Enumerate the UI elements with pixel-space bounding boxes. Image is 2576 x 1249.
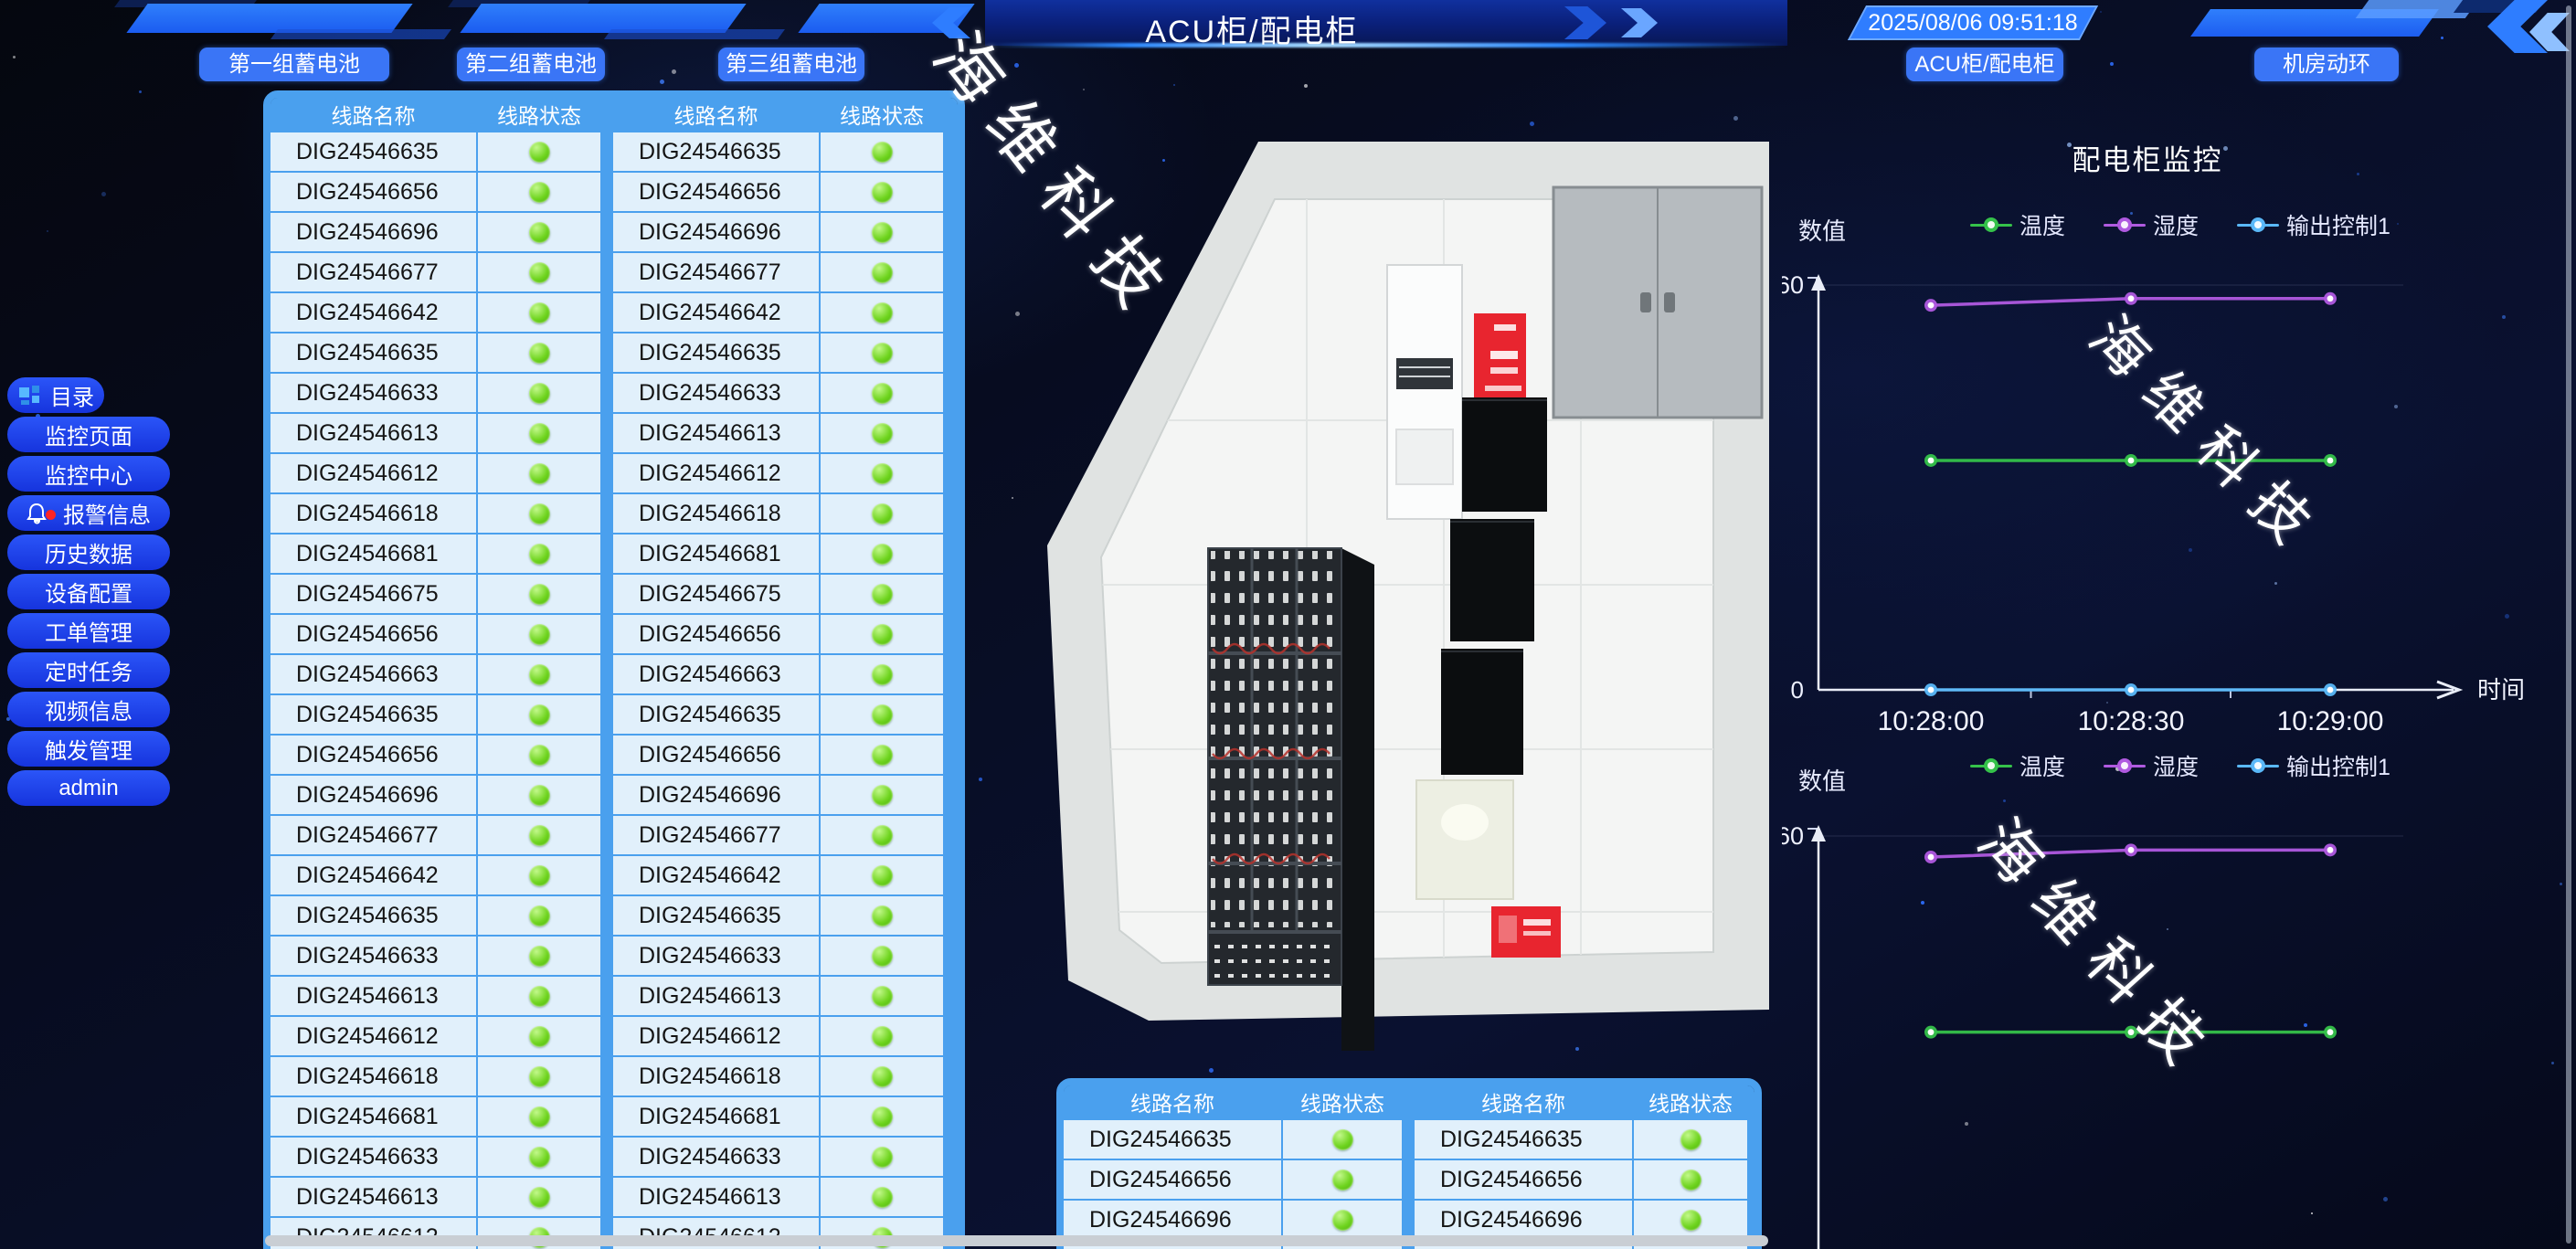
circuit-status-cell: [478, 776, 600, 814]
table-divider: [602, 695, 611, 734]
circuit-name-cell: DIG24546612: [613, 454, 819, 492]
table-header-cell: 线路状态: [1283, 1085, 1402, 1118]
status-ok-dot: [529, 825, 550, 846]
status-ok-dot: [529, 664, 550, 685]
table-divider: [602, 856, 611, 894]
status-ok-dot: [872, 1026, 893, 1047]
svg-text:10:29:00: 10:29:00: [2277, 706, 2384, 736]
circuit-status-cell: [478, 977, 600, 1015]
circuit-name-cell: DIG24546677: [613, 816, 819, 854]
circuit-status-cell: [821, 414, 943, 452]
header-deco-bar: [270, 29, 451, 39]
status-ok-dot: [872, 262, 893, 283]
acu-cabinet-button[interactable]: ACU柜/配电柜: [1906, 48, 2063, 81]
sidebar-item-menu[interactable]: 目录: [7, 377, 104, 413]
sidebar-item-label: 工单管理: [45, 615, 133, 647]
table-divider: [602, 977, 611, 1015]
circuit-name-cell: DIG24546696: [613, 776, 819, 814]
circuit-name-cell: DIG24546613: [270, 1178, 476, 1216]
circuit-name-cell: DIG24546656: [270, 615, 476, 653]
status-ok-dot: [529, 222, 550, 243]
circuit-name-cell: DIG24546613: [613, 414, 819, 452]
circuit-name-cell: DIG24546613: [613, 1178, 819, 1216]
circuit-status-cell: [821, 1017, 943, 1055]
circuit-name-cell: DIG24546635: [270, 333, 476, 372]
table-header-cell: 线路名称: [1064, 1085, 1281, 1118]
table-divider: [602, 816, 611, 854]
circuit-status-cell: [478, 1057, 600, 1096]
circuit-name-cell: DIG24546656: [1064, 1160, 1281, 1199]
svg-text:数值: 数值: [1798, 767, 1846, 795]
sidebar-item-device-config[interactable]: 设备配置: [7, 574, 170, 609]
circuit-name-cell: DIG24546612: [270, 1017, 476, 1055]
star-dot: [1209, 1068, 1214, 1073]
status-ok-dot: [529, 785, 550, 806]
circuit-name-cell: DIG24546642: [613, 293, 819, 332]
circuit-status-cell: [821, 213, 943, 251]
table-divider: [602, 454, 611, 492]
circuit-name-cell: DIG24546696: [1064, 1201, 1281, 1239]
circuit-name-cell: DIG24546618: [270, 1057, 476, 1096]
status-ok-dot: [872, 986, 893, 1007]
circuit-status-cell: [1283, 1120, 1402, 1159]
circuit-status-cell: [821, 374, 943, 412]
star-dot: [660, 79, 664, 84]
battery-group-3-button[interactable]: 第三组蓄电池: [718, 48, 864, 81]
circuit-status-cell: [821, 776, 943, 814]
circuit-status-cell: [478, 655, 600, 693]
circuit-name-cell: DIG24546677: [270, 253, 476, 291]
circuit-status-cell: [1634, 1120, 1747, 1159]
circuit-status-cell: [821, 173, 943, 211]
circuit-name-cell: DIG24546677: [613, 253, 819, 291]
circuit-name-cell: DIG24546633: [613, 937, 819, 975]
table-divider: [1404, 1160, 1413, 1199]
star-dot: [13, 56, 16, 58]
machine-room-env-button[interactable]: 机房动环: [2254, 48, 2399, 81]
star-dot: [672, 69, 676, 74]
circuit-status-cell: [478, 736, 600, 774]
table-divider: [602, 374, 611, 412]
status-ok-dot: [529, 704, 550, 725]
status-ok-dot: [529, 946, 550, 967]
circuit-status-cell: [478, 1097, 600, 1136]
circuit-name-cell: DIG24546633: [270, 1138, 476, 1176]
star-dot: [101, 192, 106, 196]
dashboard-root: ACU柜/配电柜 2025/08/06 09:51:18 第一组蓄电池 第二组蓄…: [0, 0, 2576, 1249]
status-ok-dot: [529, 142, 550, 163]
status-ok-dot: [872, 946, 893, 967]
table-divider: [602, 98, 611, 131]
circuit-name-cell: DIG24546633: [613, 374, 819, 412]
status-ok-dot: [529, 302, 550, 323]
circuit-status-cell: [478, 535, 600, 573]
status-ok-dot: [529, 182, 550, 203]
table-divider: [602, 293, 611, 332]
table-divider: [1404, 1085, 1413, 1118]
circuit-status-cell: [478, 816, 600, 854]
status-ok-dot: [872, 1106, 893, 1127]
star-dot: [1304, 84, 1308, 88]
circuit-status-cell: [478, 374, 600, 412]
status-ok-dot: [529, 986, 550, 1007]
circuit-status-cell: [821, 655, 943, 693]
circuit-name-cell: DIG24546675: [270, 575, 476, 613]
table-divider: [602, 1138, 611, 1176]
table-divider: [602, 132, 611, 171]
table-header-cell: 线路状态: [821, 98, 943, 131]
circuit-name-cell: DIG24546633: [613, 1138, 819, 1176]
circuit-status-cell: [1283, 1201, 1402, 1239]
status-ok-dot: [872, 704, 893, 725]
circuit-status-cell: [1634, 1201, 1747, 1239]
circuit-name-cell: DIG24546656: [613, 736, 819, 774]
status-ok-dot: [872, 463, 893, 484]
sidebar-item-label: 定时任务: [45, 654, 133, 686]
table-divider: [602, 414, 611, 452]
status-ok-dot: [872, 423, 893, 444]
star-dot: [2441, 37, 2443, 39]
sidebar-item-alarm-info[interactable]: 报警信息: [7, 495, 170, 531]
sidebar-item-scheduled-task[interactable]: 定时任务: [7, 652, 170, 688]
circuit-status-cell: [821, 132, 943, 171]
circuit-name-cell: DIG24546656: [1415, 1160, 1632, 1199]
table-header-cell: 线路名称: [613, 98, 819, 131]
status-ok-dot: [529, 745, 550, 766]
circuit-name-cell: DIG24546642: [613, 856, 819, 894]
status-ok-dot: [529, 503, 550, 524]
sidebar-item-label: 报警信息: [63, 497, 151, 529]
circuit-status-cell: [478, 132, 600, 171]
circuit-status-cell: [478, 333, 600, 372]
svg-text:10:28:30: 10:28:30: [2078, 706, 2185, 736]
sidebar-item-label: 监控页面: [45, 418, 133, 450]
status-ok-dot: [529, 1147, 550, 1168]
table-divider: [602, 333, 611, 372]
table-divider: [1404, 1201, 1413, 1239]
circuit-status-cell: [478, 1138, 600, 1176]
circuit-status-cell: [478, 615, 600, 653]
status-ok-dot: [872, 302, 893, 323]
circuit-status-cell: [478, 575, 600, 613]
status-ok-dot: [529, 1187, 550, 1208]
status-ok-dot: [872, 383, 893, 404]
table-divider: [602, 1178, 611, 1216]
star-dot: [979, 778, 982, 781]
circuit-name-cell: DIG24546663: [613, 655, 819, 693]
header-deco-bar: [604, 29, 785, 39]
status-ok-dot: [872, 343, 893, 364]
circuit-name-cell: DIG24546663: [270, 655, 476, 693]
table-divider: [602, 494, 611, 533]
svg-text:10:28:00: 10:28:00: [1878, 706, 1985, 736]
star-dot: [1083, 89, 1085, 90]
status-ok-dot: [529, 463, 550, 484]
status-ok-dot: [872, 865, 893, 886]
circuit-name-cell: DIG24546696: [1415, 1201, 1632, 1239]
sidebar-item-label: 目录: [50, 379, 94, 411]
circuit-status-cell: [821, 1097, 943, 1136]
circuit-name-cell: DIG24546681: [270, 535, 476, 573]
status-ok-dot: [529, 624, 550, 645]
star-dot: [139, 90, 142, 93]
circuit-name-cell: DIG24546635: [270, 132, 476, 171]
circuit-name-cell: DIG24546635: [270, 695, 476, 734]
circuit-name-cell: DIG24546681: [270, 1097, 476, 1136]
table-divider: [602, 575, 611, 613]
status-ok-dot: [529, 544, 550, 565]
table-header-cell: 线路状态: [478, 98, 600, 131]
sidebar-item-monitor-center[interactable]: 监控中心: [7, 456, 170, 492]
circuit-status-cell: [821, 816, 943, 854]
circuit-name-cell: DIG24546677: [270, 816, 476, 854]
circuit-status-cell: [478, 1017, 600, 1055]
page-title: ACU柜/配电柜: [1042, 6, 1462, 51]
table-header-cell: 线路名称: [1415, 1085, 1632, 1118]
star-dot: [1530, 122, 1534, 126]
circuit-name-cell: DIG24546618: [613, 1057, 819, 1096]
circuit-name-cell: DIG24546618: [270, 494, 476, 533]
status-ok-dot: [1332, 1170, 1353, 1191]
status-ok-dot: [529, 383, 550, 404]
status-ok-dot: [872, 142, 893, 163]
table-header-cell: 线路状态: [1634, 1085, 1747, 1118]
circuit-name-cell: DIG24546635: [270, 896, 476, 935]
table-divider: [602, 1097, 611, 1136]
status-ok-dot: [872, 1147, 893, 1168]
circuit-name-cell: DIG24546613: [270, 414, 476, 452]
circuit-status-cell: [821, 535, 943, 573]
circuit-name-cell: DIG24546642: [270, 293, 476, 332]
table-divider: [602, 655, 611, 693]
status-ok-dot: [1680, 1129, 1701, 1150]
svg-text:60: 60: [1782, 271, 1804, 299]
circuit-status-cell: [478, 1178, 600, 1216]
circuit-status-cell: [1283, 1160, 1402, 1199]
table-header-cell: 线路名称: [270, 98, 476, 131]
sidebar-item-label: 触发管理: [45, 733, 133, 765]
status-ok-dot: [529, 343, 550, 364]
status-ok-dot: [872, 222, 893, 243]
circuit-name-cell: DIG24546635: [613, 695, 819, 734]
circuit-name-cell: DIG24546696: [613, 213, 819, 251]
table-divider: [602, 736, 611, 774]
table-divider: [602, 615, 611, 653]
svg-text:时间: 时间: [2477, 676, 2525, 704]
circuit-name-cell: DIG24546635: [613, 333, 819, 372]
status-ok-dot: [872, 905, 893, 926]
circuit-status-cell: [478, 454, 600, 492]
circuit-status-cell: [478, 856, 600, 894]
table-divider: [602, 1057, 611, 1096]
status-ok-dot: [872, 745, 893, 766]
status-ok-dot: [529, 423, 550, 444]
circuit-name-cell: DIG24546696: [270, 776, 476, 814]
status-ok-dot: [872, 503, 893, 524]
status-ok-dot: [872, 624, 893, 645]
circuit-status-cell: [821, 695, 943, 734]
table-divider: [602, 937, 611, 975]
sidebar-item-monitor-page[interactable]: 监控页面: [7, 417, 170, 452]
sidebar-item-work-order[interactable]: 工单管理: [7, 613, 170, 649]
bell-icon: [27, 503, 54, 524]
circuit-status-cell: [821, 1178, 943, 1216]
alert-badge: [46, 510, 56, 520]
table-divider: [602, 213, 611, 251]
timestamp: 2025/08/06 09:51:18: [1848, 5, 2098, 40]
circuit-name-cell: DIG24546613: [270, 977, 476, 1015]
circuit-name-cell: DIG24546635: [613, 896, 819, 935]
circuit-name-cell: DIG24546613: [613, 977, 819, 1015]
sidebar-item-label: admin: [58, 776, 118, 801]
status-ok-dot: [529, 1026, 550, 1047]
circuit-status-cell: [1634, 1160, 1747, 1199]
circuit-status-cell: [478, 213, 600, 251]
star-dot: [47, 230, 48, 232]
star-dot: [1173, 84, 1175, 86]
circuit-table-bottom: 线路名称线路状态线路名称线路状态DIG24546635DIG24546635DI…: [1056, 1078, 1762, 1249]
circuit-status-cell: [821, 1138, 943, 1176]
circuit-status-cell: [821, 253, 943, 291]
circuit-status-cell: [821, 333, 943, 372]
status-ok-dot: [1332, 1210, 1353, 1231]
circuit-name-cell: DIG24546635: [1064, 1120, 1281, 1159]
circuit-status-cell: [821, 937, 943, 975]
svg-text:0: 0: [1791, 676, 1804, 704]
status-ok-dot: [529, 262, 550, 283]
status-ok-dot: [872, 664, 893, 685]
circuit-name-cell: DIG24546612: [613, 1017, 819, 1055]
sidebar-item-label: 视频信息: [45, 693, 133, 725]
status-ok-dot: [872, 1066, 893, 1087]
circuit-status-cell: [821, 896, 943, 935]
sidebar-item-label: 设备配置: [45, 576, 133, 608]
svg-text:数值: 数值: [1798, 217, 1846, 245]
star-dot: [1733, 116, 1738, 121]
star-dot: [2110, 62, 2114, 66]
status-ok-dot: [529, 905, 550, 926]
circuit-status-cell: [821, 977, 943, 1015]
battery-group-1-button[interactable]: 第一组蓄电池: [199, 48, 389, 81]
status-ok-dot: [872, 544, 893, 565]
vertical-scrollbar[interactable]: [2566, 5, 2571, 1244]
status-ok-dot: [529, 865, 550, 886]
circuit-status-cell: [821, 575, 943, 613]
circuit-name-cell: DIG24546633: [270, 374, 476, 412]
sidebar-item-admin[interactable]: admin: [7, 770, 170, 806]
circuit-name-cell: DIG24546681: [613, 1097, 819, 1136]
status-ok-dot: [872, 1187, 893, 1208]
circuit-status-cell: [478, 695, 600, 734]
circuit-name-cell: DIG24546681: [613, 535, 819, 573]
star-dot: [2100, 11, 2102, 13]
status-ok-dot: [872, 785, 893, 806]
status-ok-dot: [872, 182, 893, 203]
circuit-name-cell: DIG24546633: [270, 937, 476, 975]
circuit-name-cell: DIG24546642: [270, 856, 476, 894]
circuit-status-cell: [478, 414, 600, 452]
table-divider: [602, 535, 611, 573]
circuit-status-cell: [821, 494, 943, 533]
circuit-status-cell: [821, 293, 943, 332]
circuit-status-cell: [821, 736, 943, 774]
circuit-name-cell: DIG24546656: [613, 615, 819, 653]
status-ok-dot: [1680, 1170, 1701, 1191]
status-ok-dot: [529, 584, 550, 605]
table-divider: [1404, 1120, 1413, 1159]
circuit-name-cell: DIG24546612: [270, 454, 476, 492]
circuit-name-cell: DIG24546656: [613, 173, 819, 211]
circuit-name-cell: DIG24546618: [613, 494, 819, 533]
circuit-status-cell: [821, 1057, 943, 1096]
circuit-name-cell: DIG24546656: [270, 736, 476, 774]
sidebar-menu: 目录监控页面监控中心 报警信息历史数据设备配置工单管理定时任务视频信息触发管理a…: [7, 377, 170, 810]
circuit-name-cell: DIG24546656: [270, 173, 476, 211]
battery-group-2-button[interactable]: 第二组蓄电池: [457, 48, 605, 81]
status-ok-dot: [1332, 1129, 1353, 1150]
sidebar-item-history-data[interactable]: 历史数据: [7, 535, 170, 570]
menu-grid-icon: [17, 384, 41, 408]
circuit-name-cell: DIG24546675: [613, 575, 819, 613]
table-divider: [602, 173, 611, 211]
sidebar-item-video-info[interactable]: 视频信息: [7, 692, 170, 727]
status-ok-dot: [872, 584, 893, 605]
circuit-table-main: 线路名称线路状态线路名称线路状态DIG24546635DIG24546635DI…: [263, 90, 965, 1249]
status-ok-dot: [529, 1066, 550, 1087]
circuit-status-cell: [478, 896, 600, 935]
circuit-status-cell: [478, 494, 600, 533]
table-divider: [602, 776, 611, 814]
circuit-status-cell: [821, 615, 943, 653]
circuit-status-cell: [821, 856, 943, 894]
circuit-status-cell: [478, 253, 600, 291]
table-divider: [602, 896, 611, 935]
table-divider: [602, 1017, 611, 1055]
circuit-name-cell: DIG24546635: [1415, 1120, 1632, 1159]
status-ok-dot: [529, 1106, 550, 1127]
sidebar-item-label: 历史数据: [45, 536, 133, 568]
circuit-status-cell: [821, 454, 943, 492]
status-ok-dot: [1680, 1210, 1701, 1231]
sidebar-item-trigger-manage[interactable]: 触发管理: [7, 731, 170, 767]
circuit-name-cell: DIG24546635: [613, 132, 819, 171]
circuit-status-cell: [478, 937, 600, 975]
status-ok-dot: [872, 825, 893, 846]
table-divider: [602, 253, 611, 291]
circuit-status-cell: [478, 173, 600, 211]
svg-text:60: 60: [1782, 822, 1804, 850]
circuit-status-cell: [478, 293, 600, 332]
horizontal-scrollbar[interactable]: [265, 1235, 1768, 1246]
sidebar-item-label: 监控中心: [45, 458, 133, 490]
circuit-name-cell: DIG24546696: [270, 213, 476, 251]
